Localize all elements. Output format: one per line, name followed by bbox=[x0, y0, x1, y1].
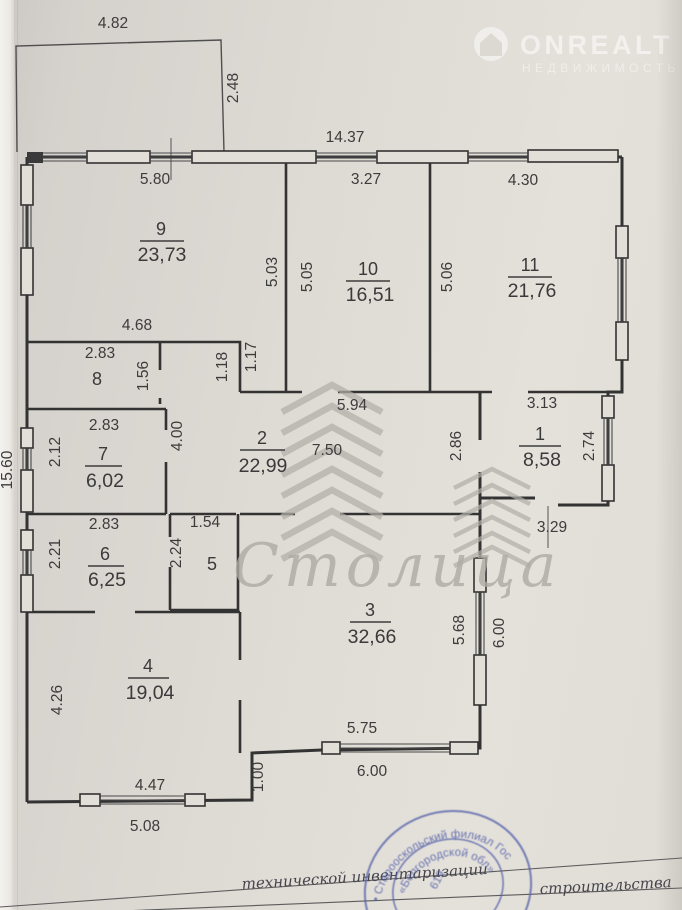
pier bbox=[21, 248, 33, 295]
watermark-script-text: Столица bbox=[233, 531, 561, 601]
pier bbox=[87, 151, 150, 163]
stamp: • Старооскольский филиал Гос «Белгородск… bbox=[343, 788, 553, 910]
pier bbox=[474, 655, 486, 705]
room-area: 6,02 bbox=[86, 470, 124, 492]
dim-r10-left: 5.05 bbox=[299, 262, 316, 292]
annex-walls bbox=[16, 40, 224, 152]
dim-corridor-top: 4.68 bbox=[122, 317, 152, 334]
room-label-1: 1 8,58 bbox=[519, 424, 561, 471]
room-area: 8,58 bbox=[523, 449, 561, 471]
dim-step-right: 1.00 bbox=[250, 762, 267, 793]
room-area: 21,76 bbox=[508, 280, 557, 302]
room-area: 6,25 bbox=[88, 569, 126, 591]
footer: технической инвентаризации строительства bbox=[0, 858, 682, 910]
room-label-8: 8 bbox=[92, 369, 102, 389]
dim-r4-bottom-outer: 5.08 bbox=[130, 818, 160, 835]
dim-left-total: 15.60 bbox=[0, 450, 16, 489]
room-number: 7 bbox=[98, 444, 108, 464]
dim-r3-right-outer: 6.00 bbox=[491, 618, 508, 649]
dim-r4-left: 4.26 bbox=[49, 685, 66, 715]
room-number: 2 bbox=[257, 428, 267, 448]
pier bbox=[80, 794, 100, 806]
room-area: 22,99 bbox=[239, 455, 288, 477]
room-label-4: 4 19,04 bbox=[126, 656, 175, 704]
pier bbox=[21, 470, 33, 512]
dim-r5-top: 1.54 bbox=[190, 514, 221, 531]
room-label-5: 5 bbox=[207, 554, 217, 574]
dim-r8-right: 1.56 bbox=[135, 361, 152, 391]
dim-top-total: 14.37 bbox=[326, 129, 365, 146]
dim-r6-top: 2.83 bbox=[89, 516, 119, 533]
room-area: 32,66 bbox=[348, 626, 397, 648]
room-area: 16,51 bbox=[346, 284, 395, 306]
dim-r8-top: 2.83 bbox=[85, 345, 115, 362]
room-area: 23,73 bbox=[138, 244, 187, 266]
onrealt-watermark: ONREALT НЕДВИЖИМОСТЬ bbox=[474, 27, 680, 75]
onrealt-brand-text: ONREALT bbox=[520, 30, 673, 60]
scanned-floor-plan-photo: ONREALT НЕДВИЖИМОСТЬ bbox=[0, 0, 682, 910]
photo-right-shade bbox=[656, 0, 682, 910]
dim-r7-top: 2.83 bbox=[89, 417, 119, 434]
pier bbox=[322, 742, 340, 754]
room-label-2: 2 22,99 bbox=[239, 428, 288, 477]
pier bbox=[192, 151, 316, 163]
room-label-7: 7 6,02 bbox=[85, 444, 124, 492]
pier bbox=[528, 150, 618, 162]
dim-r10-top: 3.27 bbox=[351, 171, 381, 188]
dim-r10-right: 5.06 bbox=[439, 262, 456, 292]
room-label-3: 3 32,66 bbox=[348, 600, 397, 648]
dim-r9-top: 5.80 bbox=[140, 171, 171, 188]
dim-r3-right-inner: 5.68 bbox=[451, 615, 468, 645]
dim-r3-bottom-outer: 6.00 bbox=[357, 763, 388, 780]
dim-r5-left: 2.24 bbox=[168, 538, 185, 569]
pier bbox=[21, 428, 33, 448]
dim-r1-right: 2.74 bbox=[581, 431, 598, 462]
footer-caption-2: строительства bbox=[539, 873, 672, 898]
room-label-9: 9 23,73 bbox=[138, 219, 187, 266]
dim-closet-left: 1.18 bbox=[214, 352, 231, 382]
dim-r6-left: 2.21 bbox=[47, 539, 64, 569]
pier bbox=[21, 165, 33, 205]
room-label-6: 6 6,25 bbox=[88, 544, 126, 591]
pier bbox=[21, 530, 33, 550]
room-label-10: 10 16,51 bbox=[346, 259, 395, 306]
dim-annex-right: 2.48 bbox=[225, 73, 242, 103]
dim-hall-top: 5.94 bbox=[337, 397, 368, 414]
pier bbox=[602, 396, 614, 418]
floor-plan-drawing: ONREALT НЕДВИЖИМОСТЬ bbox=[0, 0, 682, 910]
dim-r1-bottom: 3.29 bbox=[537, 519, 567, 536]
dim-r4-bottom-inner: 4.47 bbox=[135, 777, 165, 794]
room-area: 19,04 bbox=[126, 682, 175, 704]
room-labels: 9 23,73 10 16,51 11 21,76 8 7 6,02 2 bbox=[85, 219, 561, 704]
room-number: 11 bbox=[521, 255, 540, 275]
pier bbox=[377, 151, 468, 163]
room-number: 4 bbox=[143, 656, 153, 676]
room-label-11: 11 21,76 bbox=[508, 255, 557, 302]
dim-r3-bottom-inner: 5.75 bbox=[347, 720, 377, 737]
pier bbox=[602, 465, 614, 501]
dim-hall-right: 2.86 bbox=[448, 431, 465, 461]
corner-pier bbox=[27, 152, 43, 163]
dim-hall-left: 4.00 bbox=[169, 421, 186, 452]
pier bbox=[21, 575, 33, 612]
pier bbox=[450, 742, 478, 754]
dim-closet-right: 1.17 bbox=[243, 342, 260, 372]
room-number: 3 bbox=[365, 600, 375, 620]
pier bbox=[616, 322, 628, 360]
room-number: 9 bbox=[156, 219, 166, 239]
pier bbox=[185, 794, 205, 806]
dim-r11-top: 4.30 bbox=[508, 172, 539, 189]
stolitsa-watermark: Столица bbox=[233, 385, 561, 601]
dim-r1-top: 3.13 bbox=[527, 395, 557, 412]
room-number: 6 bbox=[100, 544, 110, 564]
dim-hall-mid: 7.50 bbox=[312, 442, 343, 459]
dim-annex-top: 4.82 bbox=[98, 15, 128, 32]
dim-r9-right: 5.03 bbox=[264, 257, 281, 287]
dim-r7-left: 2.12 bbox=[47, 437, 64, 467]
room-number: 10 bbox=[358, 259, 378, 279]
pier bbox=[616, 226, 628, 258]
room-number: 1 bbox=[535, 424, 545, 444]
